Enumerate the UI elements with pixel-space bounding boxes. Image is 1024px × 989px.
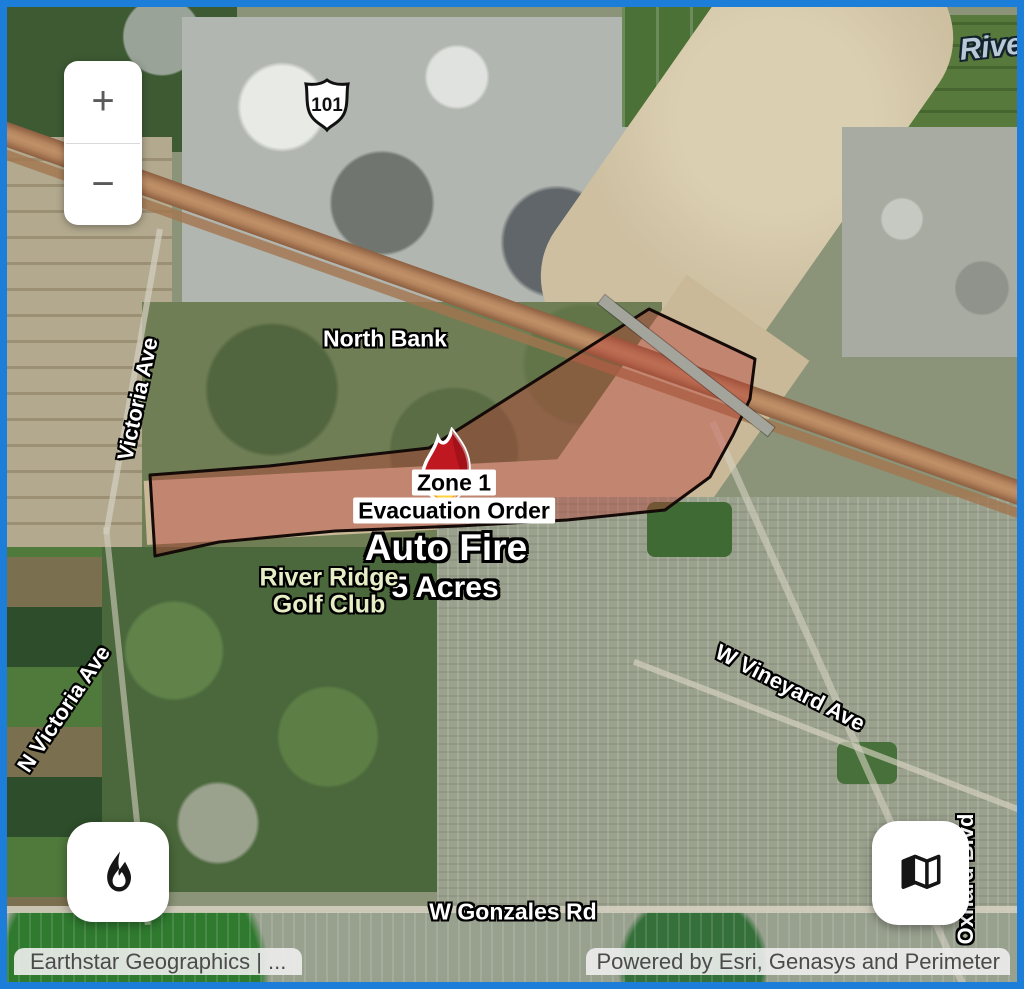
place-label-north-bank: North Bank [323,326,447,353]
highway-101-shield-label: 101 [311,95,343,116]
minus-icon: − [91,162,114,207]
map-icon [895,847,947,899]
attribution-powered-by: Powered by Esri, Genasys and Perimeter [586,948,1010,975]
map-viewport: 101 Zone 1 Evacuation Order Auto Fire 5 … [0,0,1024,989]
plus-icon: + [91,79,114,124]
highway-101-shield-icon: 101 [301,77,353,133]
zoom-out-button[interactable]: − [64,144,142,226]
place-label-river: River [958,26,1017,68]
fire-layers-button[interactable] [67,822,169,922]
road-label-w-gonzales-rd: W Gonzales Rd [429,899,596,926]
place-label-golf-club-1: River Ridge [260,564,399,593]
fire-size-label: 5 Acres [391,571,498,605]
zone-label: Zone 1 [412,470,496,496]
flame-icon [92,846,144,898]
order-label-chip[interactable]: Evacuation Order [353,498,555,525]
zoom-in-button[interactable]: + [64,61,142,143]
attribution-basemap[interactable]: Earthstar Geographics | ... [14,948,302,975]
order-label: Evacuation Order [353,498,555,524]
basemap-button[interactable] [872,821,969,925]
zone-label-chip[interactable]: Zone 1 [412,470,496,497]
zoom-control: + − [64,61,142,225]
attribution-basemap-text: Earthstar Geographics | ... [30,949,286,975]
place-label-golf-club-2: Golf Club [273,591,385,620]
attribution-powered-by-text: Powered by Esri, Genasys and Perimeter [596,949,1000,975]
